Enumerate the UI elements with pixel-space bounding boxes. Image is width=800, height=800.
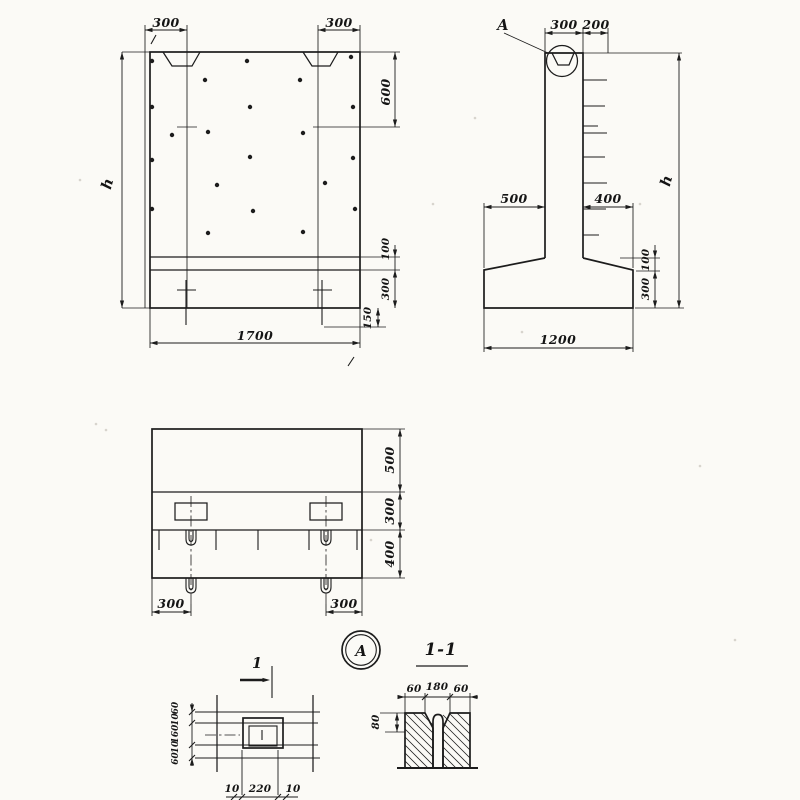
arrowheads-down xyxy=(120,120,681,733)
dim-label: 60 xyxy=(171,752,181,765)
dim-label: 300 xyxy=(157,596,184,611)
pocket-detail-plan: 1 60 10 160 10 60 10 220 10 xyxy=(171,655,320,800)
section-block-right xyxy=(443,713,470,768)
dim-label: 300 xyxy=(325,15,352,30)
scan-noise xyxy=(80,118,735,640)
front-dimension-lines xyxy=(122,30,395,343)
anchor-notches xyxy=(163,52,338,66)
dim-label: 160 xyxy=(171,724,181,743)
dim-label: 1700 xyxy=(237,328,273,343)
arrowheads-left xyxy=(145,28,591,699)
dim-label: 1200 xyxy=(540,332,576,347)
technical-drawing-canvas: 300 300 h 600 100 300 150 1700 А 300 200… xyxy=(0,0,800,800)
anchor-channel-lines xyxy=(145,25,360,308)
rebar-dots xyxy=(152,57,355,233)
dim-label: 10 xyxy=(171,713,181,726)
stem-outline xyxy=(545,53,583,258)
arrowheads-up xyxy=(120,52,681,766)
dim-label: 400 xyxy=(594,191,621,206)
dimension-arrowheads xyxy=(120,28,681,766)
anchor-bar-marks xyxy=(177,280,332,325)
dim-label: 600 xyxy=(378,78,393,105)
stem-edge-lines xyxy=(217,695,313,772)
dim-label: 100 xyxy=(380,237,392,260)
dim-label: 300 xyxy=(550,17,577,32)
footing-outline xyxy=(484,258,633,308)
panel-band-lines xyxy=(150,257,360,270)
callout-leader xyxy=(504,33,548,53)
dim-label: 100 xyxy=(640,248,652,271)
stray-mark xyxy=(151,35,354,366)
dim-label: 300 xyxy=(330,596,357,611)
dim-label: 200 xyxy=(581,17,609,32)
dim-label: 10 xyxy=(285,783,301,795)
hatch-left xyxy=(405,713,433,768)
dim-label: 500 xyxy=(500,191,527,206)
plan-extension-lines xyxy=(152,429,405,616)
front-view: 300 300 h 600 100 300 150 1700 xyxy=(98,15,400,366)
dim-label: 60 xyxy=(453,683,469,695)
dim-label: 60 xyxy=(406,683,422,695)
plan-section-lines xyxy=(152,492,362,530)
dim-label-height: h xyxy=(98,177,117,192)
dim-label: 180 xyxy=(426,681,449,693)
pocket-inner-rect xyxy=(249,726,277,746)
dim-label: 300 xyxy=(382,497,397,524)
front-extension-lines xyxy=(122,52,400,348)
dim-label: 400 xyxy=(382,540,397,567)
section-1-1: 1-1 60 180 60 80 xyxy=(370,640,478,768)
dim-label: 220 xyxy=(248,783,272,795)
dim-label: 60 xyxy=(171,701,181,714)
dim-label: 300 xyxy=(152,15,179,30)
plan-view: 500 300 400 300 300 xyxy=(152,429,405,616)
dim-label: 150 xyxy=(362,306,374,329)
dim-label: 300 xyxy=(380,277,392,300)
detail-marker: А xyxy=(342,631,380,669)
detail-dimension-lines xyxy=(192,703,298,797)
arrowheads-right xyxy=(180,28,634,699)
drawing-sheet: 300 300 h 600 100 300 150 1700 А 300 200… xyxy=(0,0,800,800)
detail-circle xyxy=(547,46,578,77)
stem-groove xyxy=(552,53,574,65)
dim-label-height: h xyxy=(657,174,676,189)
section-title: 1-1 xyxy=(425,640,458,659)
dim-label: 10 xyxy=(224,783,240,795)
dim-label: 80 xyxy=(370,714,382,730)
section-cut-label: 1 xyxy=(252,655,262,672)
stem-tie-marks xyxy=(583,80,607,235)
section-tongue xyxy=(433,715,443,769)
detail-callout-label: А xyxy=(496,17,509,34)
detail-marker-label: А xyxy=(354,643,367,660)
dim-label: 10 xyxy=(171,740,181,753)
dim-label: 500 xyxy=(382,446,397,473)
dim-label: 300 xyxy=(640,277,652,300)
